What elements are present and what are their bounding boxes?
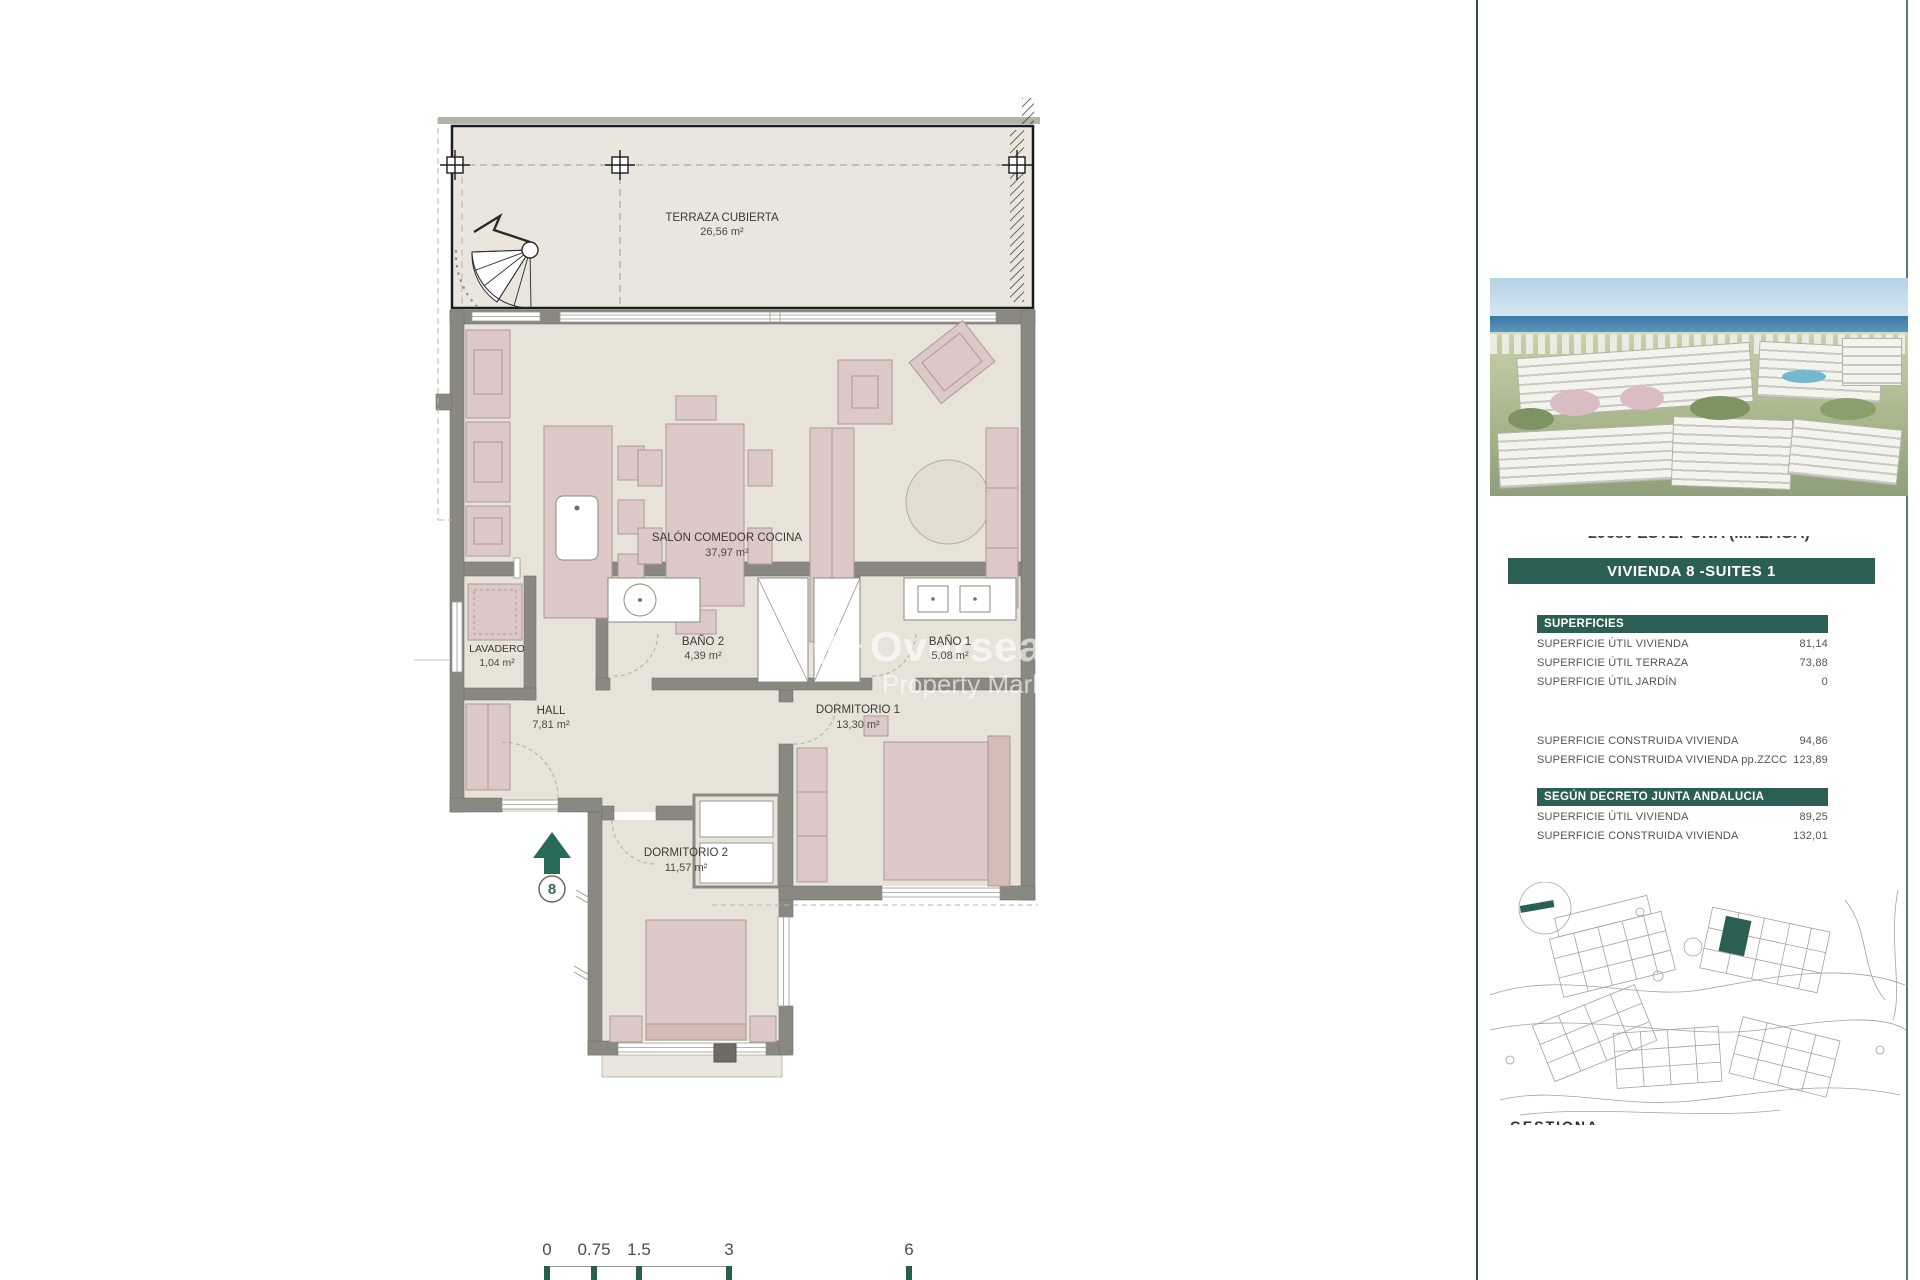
trees — [1820, 398, 1876, 420]
room-label-dorm1: DORMITORIO 1 — [816, 704, 900, 716]
row-label: SUPERFICIE ÚTIL TERRAZA — [1537, 657, 1688, 669]
scale-tick — [906, 1266, 912, 1280]
blossom-trees — [1620, 386, 1664, 410]
decreto-header: SEGÚN DECRETO JUNTA ANDALUCIA — [1537, 788, 1828, 806]
building-block — [1671, 416, 1793, 490]
table-row: SUPERFICIE CONSTRUIDA VIVIENDA pp.ZZCC 1… — [1537, 752, 1828, 768]
room-label-terraza: TERRAZA CUBIERTA — [665, 212, 779, 224]
terrace — [452, 98, 1034, 308]
row-label: SUPERFICIE ÚTIL VIVIENDA — [1537, 811, 1689, 823]
entrance-marker: 8 — [533, 832, 571, 902]
row-value: 132,01 — [1793, 830, 1828, 842]
room-label-lavadero: LAVADERO — [469, 643, 525, 655]
floorplan-sheet: Overseas Property Market 8 TERRAZA CUBIE… — [0, 0, 1920, 1280]
room-area-bano1: 5,08 m² — [931, 650, 969, 662]
footer-text: GESTIONA — [1510, 1118, 1670, 1125]
scale-label-6: 6 — [904, 1240, 913, 1260]
row-label: SUPERFICIE ÚTIL JARDÍN — [1537, 676, 1677, 688]
room-label-dorm2: DORMITORIO 2 — [644, 847, 728, 859]
room-label-bano2: BAÑO 2 — [682, 635, 724, 648]
scale-tick — [591, 1266, 597, 1280]
row-value: 89,25 — [1799, 811, 1828, 823]
site-plan — [1482, 882, 1908, 1128]
site-plan-north-bar — [1520, 900, 1555, 913]
room-label-bano1: BAÑO 1 — [929, 635, 971, 648]
table-row: SUPERFICIE CONSTRUIDA VIVIENDA 94,86 — [1537, 733, 1828, 749]
scale-label-3: 3 — [724, 1240, 733, 1260]
entrance-arrow-icon — [533, 832, 571, 874]
superficies-header: SUPERFICIES — [1537, 615, 1828, 633]
table-row: SUPERFICIE ÚTIL JARDÍN 0 — [1537, 674, 1828, 690]
room-area-lavadero: 1,04 m² — [479, 657, 515, 669]
row-value: 123,89 — [1793, 754, 1828, 766]
scale-tick — [726, 1266, 732, 1280]
room-area-hall: 7,81 m² — [532, 719, 570, 731]
watermark-line2: Property Market — [882, 669, 1060, 699]
aerial-photo — [1490, 278, 1908, 496]
scale-label-075: 0.75 — [577, 1240, 610, 1260]
scale-tick — [636, 1266, 642, 1280]
row-label: SUPERFICIE CONSTRUIDA VIVIENDA — [1537, 735, 1739, 747]
room-area-dorm1: 13,30 m² — [836, 719, 880, 731]
scale-label-15: 1.5 — [627, 1240, 651, 1260]
entrance-number: 8 — [548, 881, 556, 898]
sea-strip — [1490, 316, 1908, 332]
building-block — [1497, 423, 1684, 489]
scale-tick — [544, 1266, 550, 1280]
row-value: 94,86 — [1799, 735, 1828, 747]
row-label: SUPERFICIE CONSTRUIDA VIVIENDA pp.ZZCC — [1537, 754, 1787, 766]
floor-plan-drawing: Overseas Property Market 8 TERRAZA CUBIE… — [330, 90, 1060, 1090]
table-row: SUPERFICIE ÚTIL TERRAZA 73,88 — [1537, 655, 1828, 671]
row-label: SUPERFICIE CONSTRUIDA VIVIENDA — [1537, 830, 1739, 842]
room-area-dorm2: 11,57 m² — [665, 862, 708, 874]
row-label: SUPERFICIE ÚTIL VIVIENDA — [1537, 638, 1689, 650]
building-block — [1787, 418, 1902, 485]
table-row: SUPERFICIE CONSTRUIDA VIVIENDA 132,01 — [1537, 828, 1828, 844]
address-line: 29680 ESTEPONA (MÁLAGA) — [1490, 536, 1908, 548]
address-text: 29680 ESTEPONA (MÁLAGA) — [1490, 536, 1908, 543]
room-area-salon: 37,97 m² — [705, 547, 749, 559]
row-value: 81,14 — [1799, 638, 1828, 650]
table-row: SUPERFICIE ÚTIL VIVIENDA 89,25 — [1537, 809, 1828, 825]
sidebar-left-border — [1476, 0, 1478, 1280]
trees — [1508, 408, 1554, 430]
row-value: 73,88 — [1799, 657, 1828, 669]
pool — [1782, 370, 1826, 383]
row-value: 0 — [1822, 676, 1828, 688]
unit-banner: VIVIENDA 8 -SUITES 1 — [1508, 558, 1875, 584]
building-block — [1842, 338, 1902, 386]
upper-slab-edge — [438, 117, 1040, 124]
room-area-terraza: 26,56 m² — [700, 226, 744, 238]
blossom-trees — [1550, 390, 1600, 416]
dorm2-terrace-strip — [602, 1055, 782, 1077]
room-area-bano2: 4,39 m² — [684, 650, 722, 662]
highlighted-unit — [1719, 916, 1752, 957]
scale-label-0: 0 — [542, 1240, 551, 1260]
room-label-salon: SALÓN COMEDOR COCINA — [652, 531, 802, 544]
footer-clipped: GESTIONA — [1510, 1118, 1670, 1125]
table-row: SUPERFICIE ÚTIL VIVIENDA 81,14 — [1537, 636, 1828, 652]
trees — [1690, 396, 1750, 420]
room-label-hall: HALL — [537, 705, 566, 717]
